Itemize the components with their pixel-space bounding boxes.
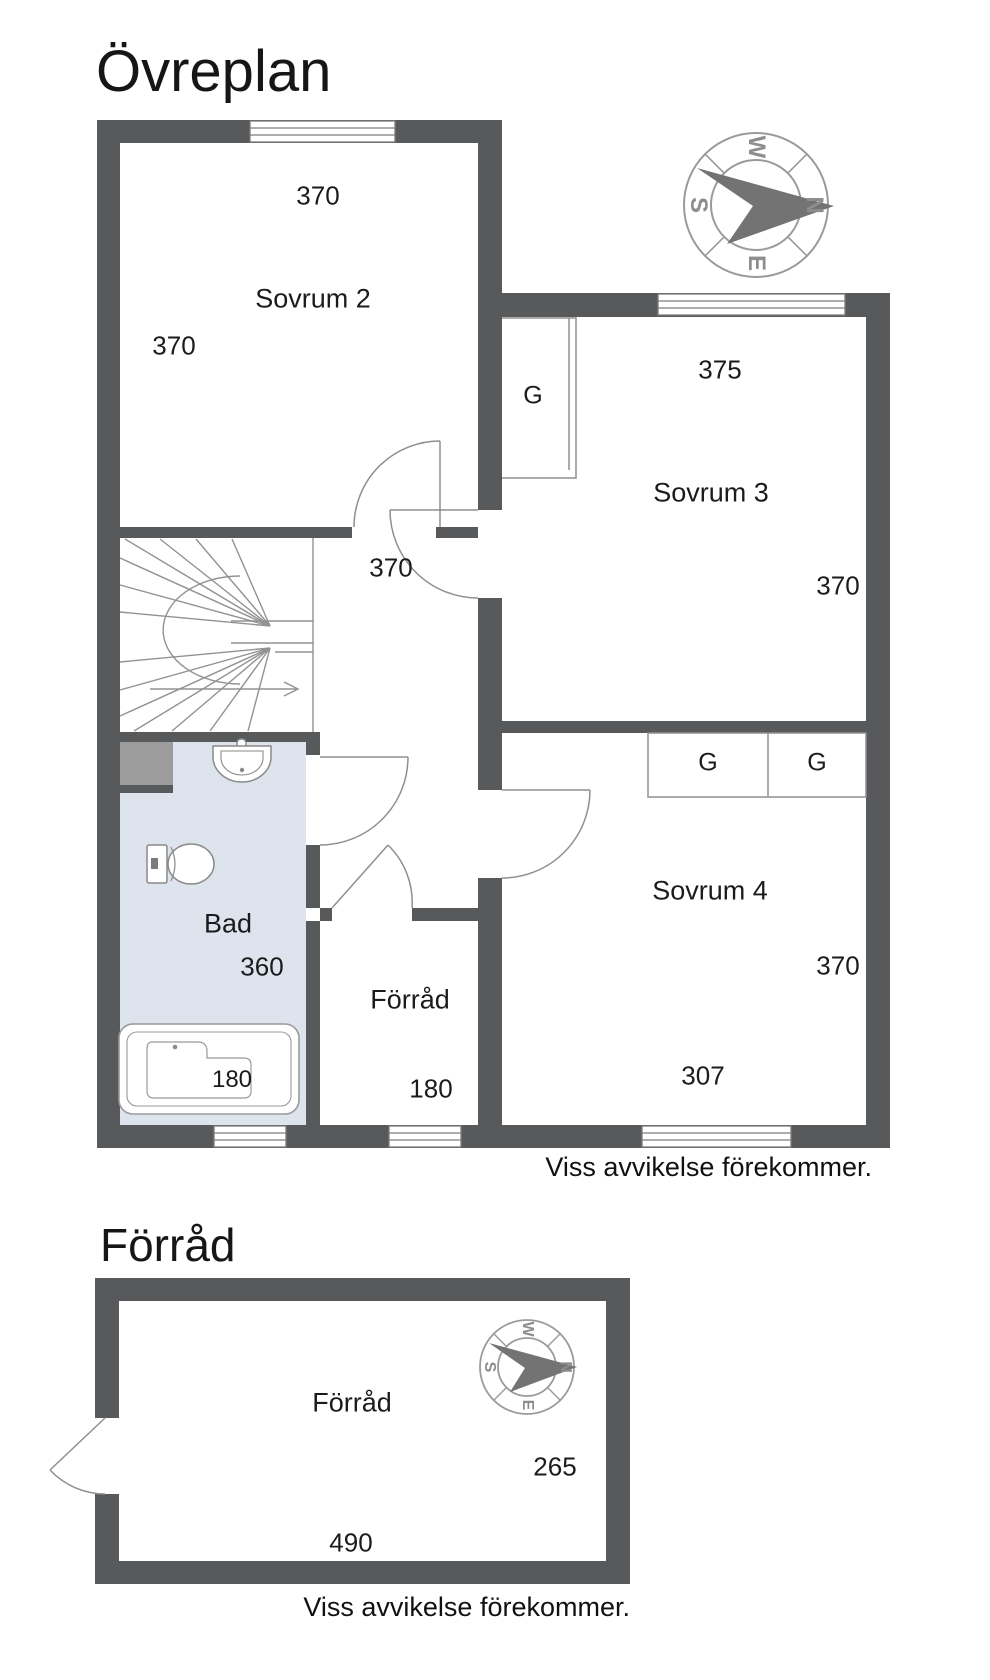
door-bathroom (320, 757, 408, 845)
dim-sovrum2-top: 370 (296, 181, 339, 212)
disclaimer-lower: Viss avvikelse förekommer. (303, 1592, 630, 1623)
compass-north-upper: N (800, 196, 828, 213)
door-forrad-upper (332, 845, 412, 908)
dim-bathtub: 180 (212, 1066, 252, 1094)
dim-hall: 370 (369, 553, 412, 584)
compass-east-upper: E (742, 255, 770, 271)
dim-bad: 360 (240, 952, 283, 983)
dim-forrad-upper: 180 (409, 1074, 452, 1105)
dim-sovrum3-top: 375 (698, 355, 741, 386)
dim-sovrum4-bottom: 307 (681, 1061, 724, 1092)
room-label-sovrum2: Sovrum 2 (255, 284, 371, 315)
door-sovrum4 (502, 790, 590, 878)
compass-west-upper: W (742, 136, 770, 159)
sink (213, 739, 271, 782)
staircase (120, 538, 313, 732)
section-title-forrad: Förråd (100, 1218, 235, 1272)
toilet (147, 844, 214, 884)
compass-east-lower: E (518, 1400, 536, 1411)
window-sovrum2 (250, 121, 395, 142)
door-forrad-lower (50, 1418, 105, 1494)
disclaimer-upper: Viss avvikelse förekommer. (545, 1152, 872, 1183)
closets-sovrum4 (648, 733, 866, 797)
door-sovrum2 (354, 441, 440, 527)
room-label-forrad-upper: Förråd (370, 985, 450, 1016)
compass-south-upper: S (684, 197, 712, 213)
compass-west-lower: W (518, 1321, 536, 1336)
dim-sovrum2-left: 370 (152, 331, 195, 362)
window-sovrum3 (658, 294, 845, 315)
page-title: Övreplan (96, 38, 331, 105)
windows-bottom (214, 1126, 791, 1147)
bathtub (119, 1024, 299, 1114)
dim-sovrum4-right: 370 (816, 951, 859, 982)
room-label-sovrum3: Sovrum 3 (653, 478, 769, 509)
dim-sovrum3-right: 370 (816, 571, 859, 602)
compass-south-lower: S (480, 1362, 498, 1373)
room-label-sovrum4: Sovrum 4 (652, 876, 768, 907)
closet-right-label-sovrum4: G (807, 749, 826, 778)
floorplan-page: Övreplan (0, 0, 990, 1680)
dim-forrad-height: 265 (533, 1452, 576, 1483)
room-label-forrad-lower: Förråd (312, 1388, 392, 1419)
closet-left-label-sovrum4: G (698, 749, 717, 778)
closet-label-sovrum3: G (523, 382, 542, 411)
compass-north-lower: N (556, 1361, 574, 1373)
dim-forrad-width: 490 (329, 1528, 372, 1559)
room-label-bad: Bad (204, 909, 252, 940)
floorplan-graphics (0, 0, 990, 1680)
